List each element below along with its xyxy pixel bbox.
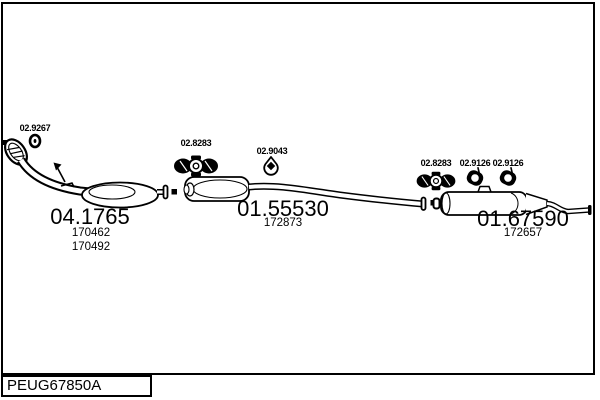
part-label-mount-rear: 02.8283 <box>421 158 452 169</box>
gasket-ring-icon <box>30 135 40 147</box>
part-label-gasket: 02.9267 <box>20 123 51 134</box>
rubber-mount-icon-mid <box>174 156 218 177</box>
part-label-ring-hanger-1: 02.9126 <box>460 158 491 169</box>
part-label-mount-mid: 02.8283 <box>181 138 212 149</box>
part-ref-rear-muffler: 172657 <box>504 227 542 239</box>
part-ref-centre-muffler: 172873 <box>264 217 302 229</box>
catalog-code-box: PEUG67850A <box>1 375 152 397</box>
hanger-bracket-icon <box>264 157 278 175</box>
part-ref-front-pipe-2: 170492 <box>72 241 110 253</box>
exhaust-diagram-page: 02.9267 02.8283 02.9043 02.8283 02.9126 … <box>0 0 600 400</box>
rubber-mount-icon-rear <box>417 172 456 190</box>
catalog-code: PEUG67850A <box>7 377 101 394</box>
part-ref-front-pipe-1: 170462 <box>72 227 110 239</box>
part-label-ring-hanger-2: 02.9126 <box>493 158 524 169</box>
part-label-hanger-mid: 02.9043 <box>257 146 288 157</box>
